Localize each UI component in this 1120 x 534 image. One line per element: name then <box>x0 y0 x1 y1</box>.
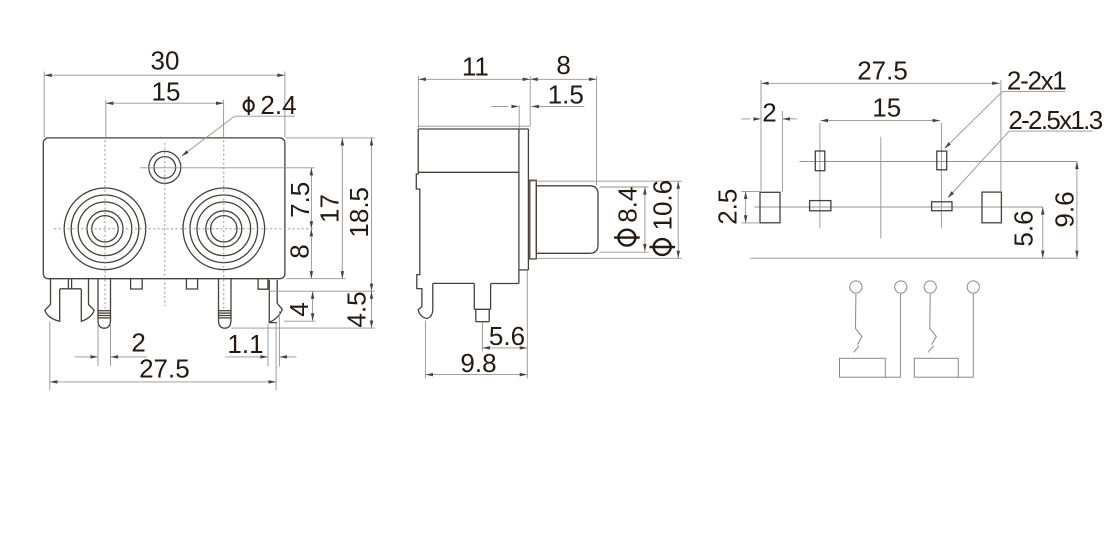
svg-text:8: 8 <box>556 50 570 80</box>
svg-text:2.4: 2.4 <box>260 90 296 120</box>
svg-text:4.5: 4.5 <box>342 291 372 327</box>
svg-text:7.5: 7.5 <box>285 182 315 218</box>
svg-text:5.6: 5.6 <box>1009 210 1039 246</box>
svg-text:1.1: 1.1 <box>227 329 263 359</box>
svg-text:2-2.5x1.3: 2-2.5x1.3 <box>1008 105 1102 135</box>
svg-text:2: 2 <box>762 98 776 128</box>
svg-text:8.4: 8.4 <box>612 187 642 223</box>
svg-text:30: 30 <box>151 46 180 76</box>
svg-text:10.6: 10.6 <box>648 180 678 231</box>
svg-text:5.6: 5.6 <box>489 321 525 351</box>
svg-text:4: 4 <box>284 302 314 316</box>
svg-text:27.5: 27.5 <box>139 354 190 384</box>
svg-text:9.6: 9.6 <box>1050 191 1080 227</box>
svg-text:18.5: 18.5 <box>344 187 374 238</box>
svg-text:17: 17 <box>315 194 345 223</box>
svg-text:2-2x1: 2-2x1 <box>1007 66 1066 96</box>
svg-text:2.5: 2.5 <box>713 189 743 225</box>
svg-text:8: 8 <box>285 244 315 258</box>
svg-text:11: 11 <box>462 51 489 81</box>
svg-text:15: 15 <box>872 92 901 122</box>
svg-text:27.5: 27.5 <box>857 55 908 85</box>
svg-text:9.8: 9.8 <box>460 348 496 378</box>
svg-text:15: 15 <box>152 77 181 107</box>
svg-text:1.5: 1.5 <box>548 80 584 110</box>
